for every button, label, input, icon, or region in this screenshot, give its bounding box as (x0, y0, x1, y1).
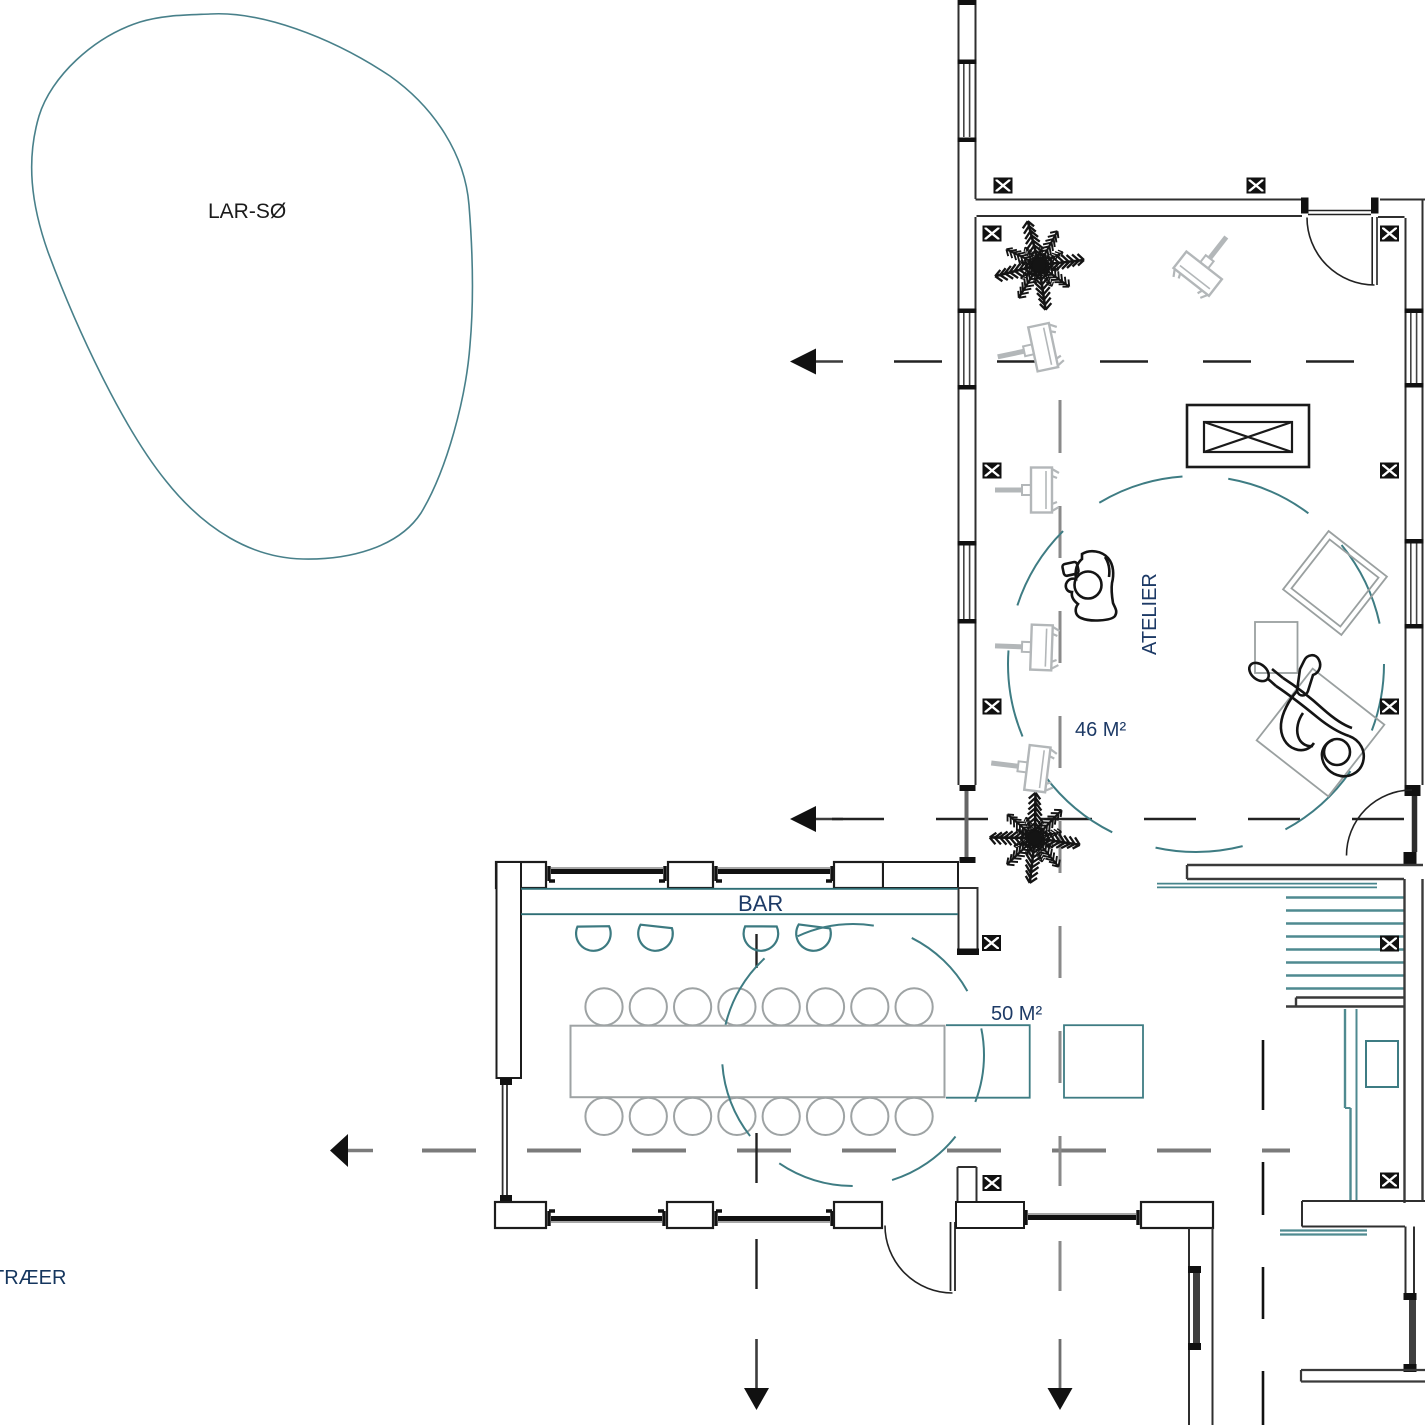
svg-text:46 M²: 46 M² (1075, 719, 1126, 741)
svg-text:BAR: BAR (738, 891, 783, 916)
svg-text:LAR-SØ: LAR-SØ (208, 200, 286, 223)
svg-text:ATELIER: ATELIER (1139, 573, 1161, 655)
svg-text:50 M²: 50 M² (991, 1003, 1042, 1025)
svg-text:TRÆER: TRÆER (0, 1267, 66, 1289)
